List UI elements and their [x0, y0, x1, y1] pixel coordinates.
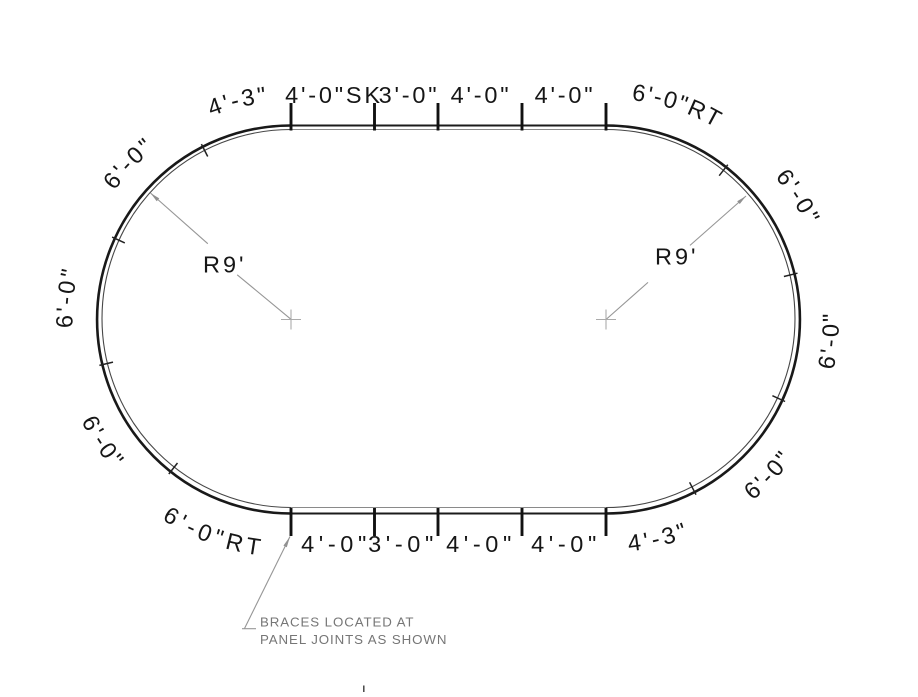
svg-text:R9': R9': [655, 244, 699, 270]
svg-text:3'-0": 3'-0": [368, 531, 438, 557]
svg-text:4'-0": 4'-0": [301, 531, 371, 557]
svg-text:R9': R9': [203, 252, 247, 278]
svg-text:4'-0"SK: 4'-0"SK: [285, 82, 383, 108]
svg-text:BRACES LOCATED AT: BRACES LOCATED AT: [260, 615, 414, 630]
svg-text:PANEL JOINTS AS SHOWN: PANEL JOINTS AS SHOWN: [260, 632, 447, 647]
svg-text:4'-0": 4'-0": [535, 82, 596, 108]
svg-text:4'-0": 4'-0": [531, 531, 601, 557]
svg-text:3'-0": 3'-0": [379, 82, 440, 108]
svg-text:4'-0": 4'-0": [451, 82, 512, 108]
svg-text:4'-0": 4'-0": [446, 531, 516, 557]
